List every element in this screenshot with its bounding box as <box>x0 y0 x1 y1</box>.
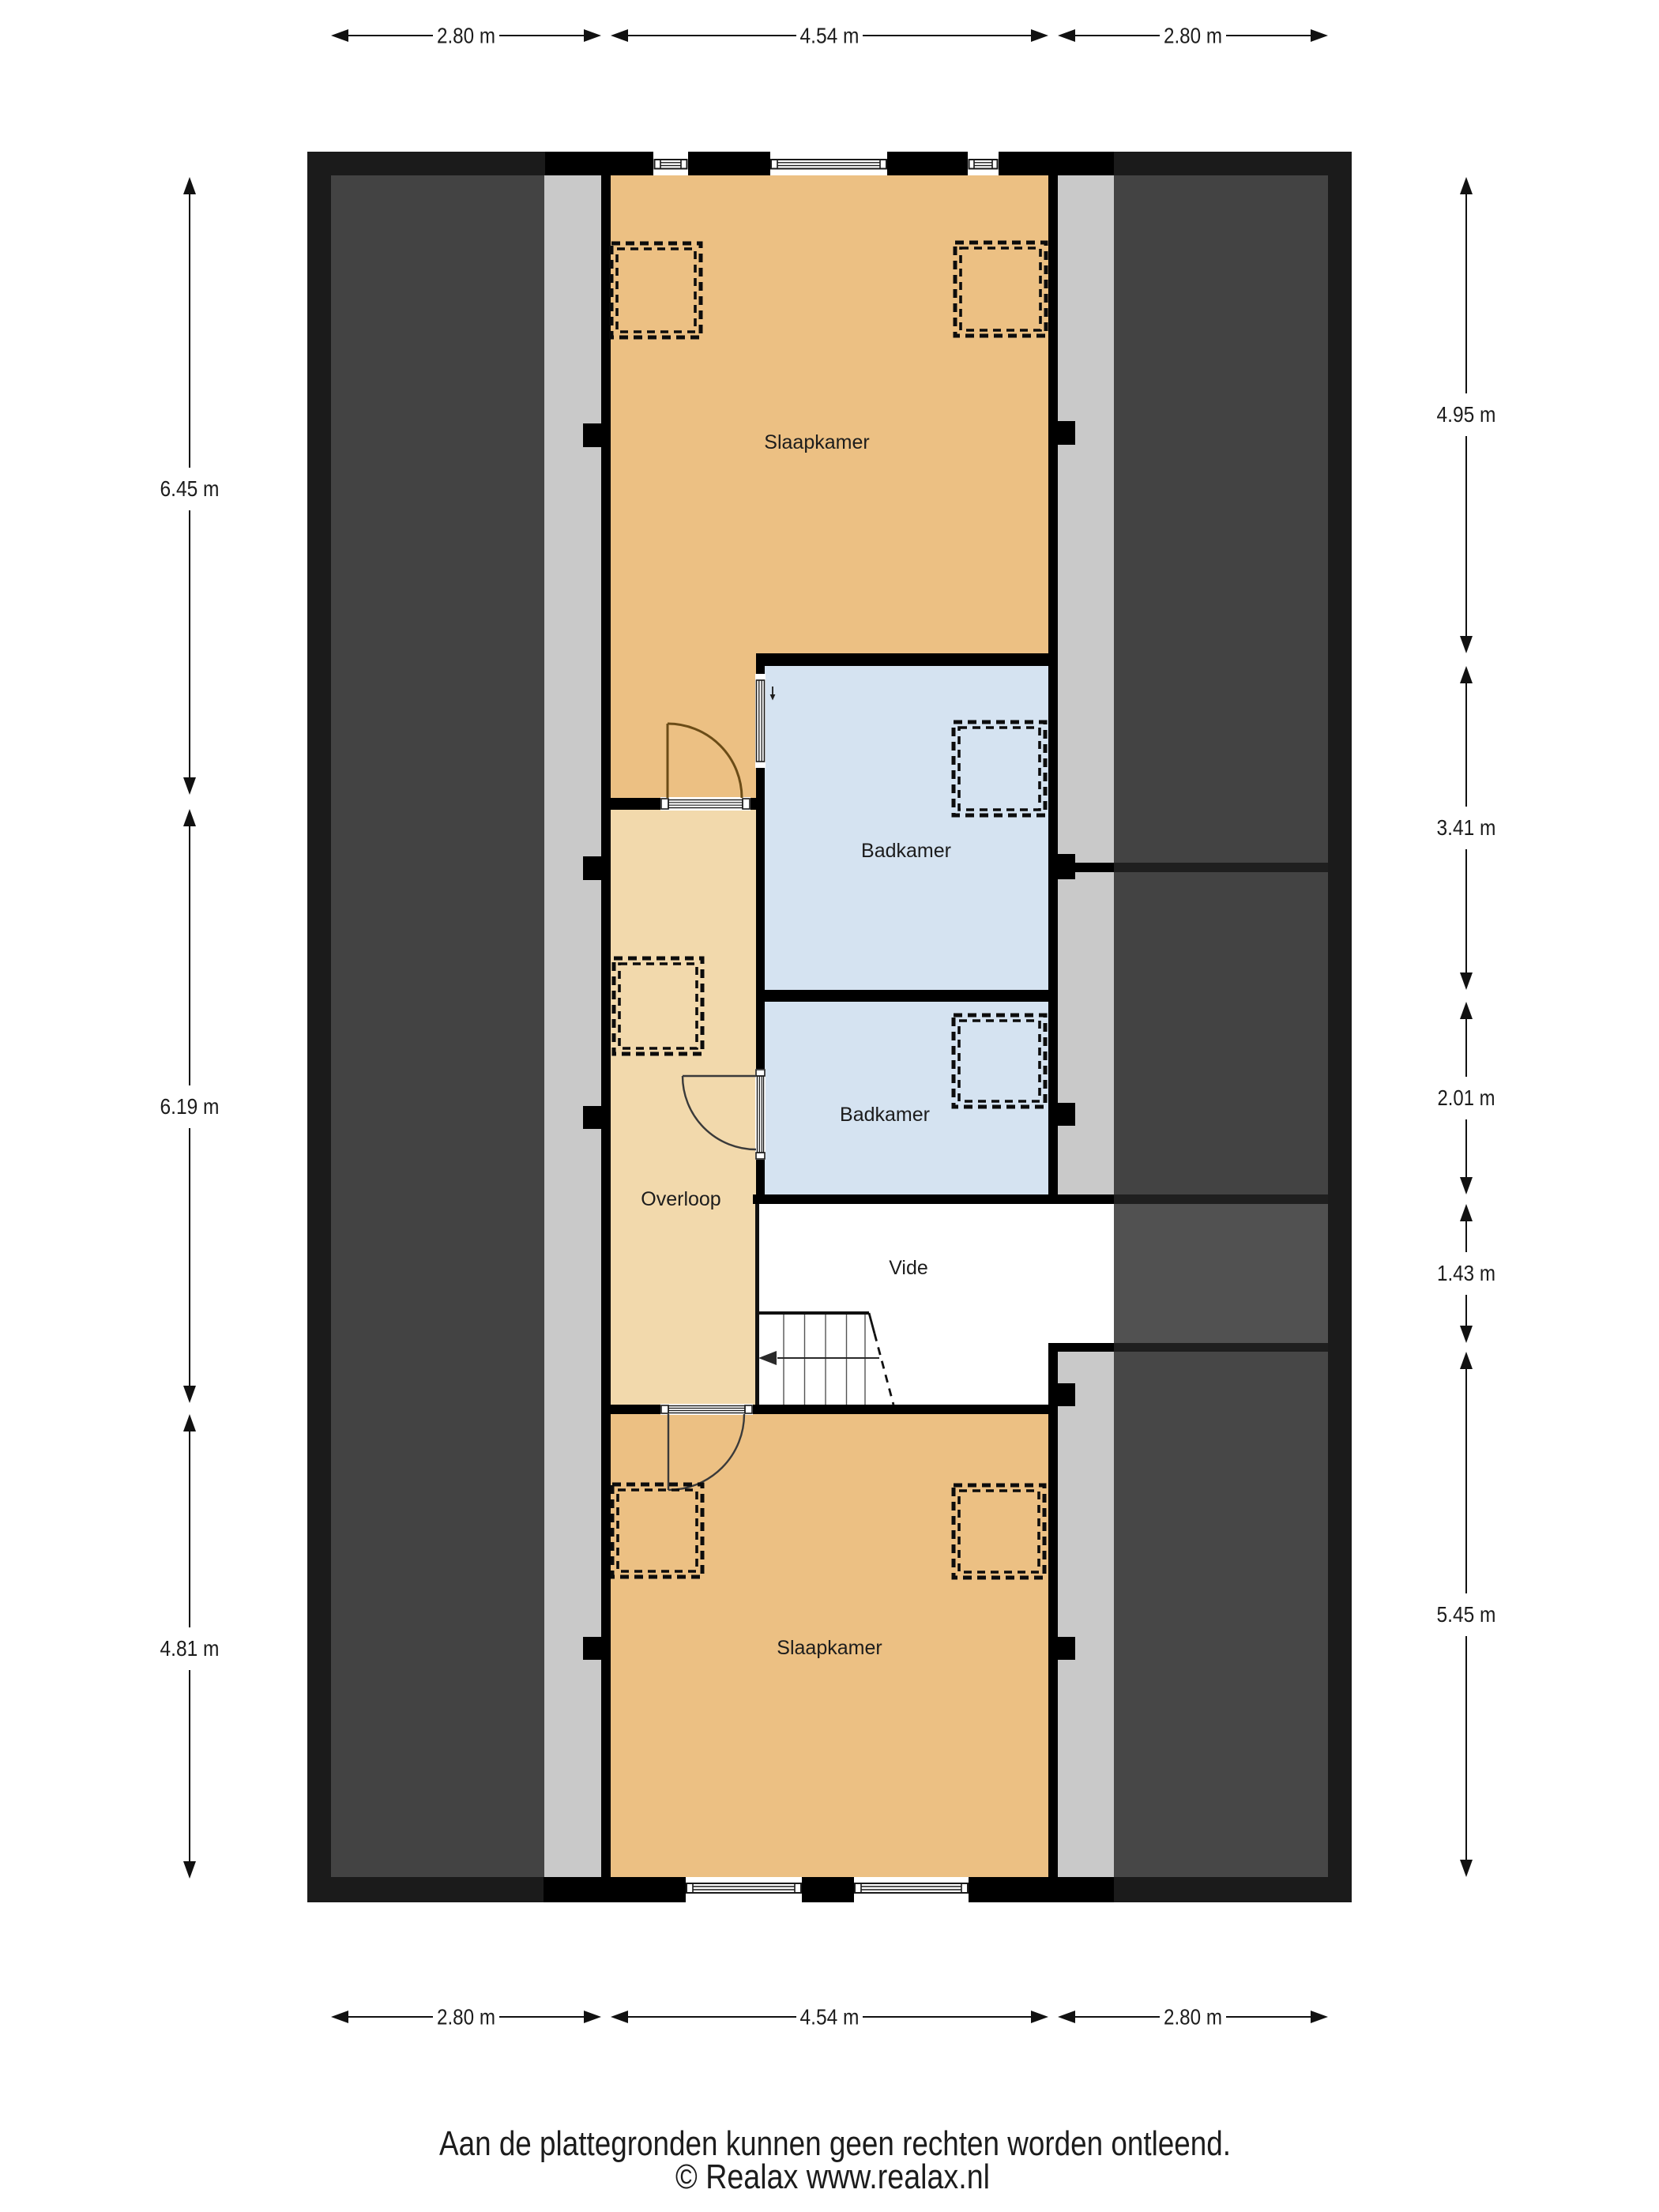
svg-text:2.01 m: 2.01 m <box>1438 1085 1495 1110</box>
svg-text:4.54 m: 4.54 m <box>800 24 860 48</box>
svg-text:2.80 m: 2.80 m <box>1164 2005 1222 2030</box>
svg-text:1.43 m: 1.43 m <box>1437 1261 1495 1285</box>
svg-text:© Realax www.realax.nl: © Realax www.realax.nl <box>675 2157 990 2196</box>
svg-text:4.81 m: 4.81 m <box>160 1636 220 1661</box>
svg-text:Slaapkamer: Slaapkamer <box>764 431 869 453</box>
svg-text:Vide: Vide <box>889 1257 928 1279</box>
svg-text:2.80 m: 2.80 m <box>1164 24 1222 48</box>
svg-text:2.80 m: 2.80 m <box>437 24 495 48</box>
svg-text:2.80 m: 2.80 m <box>437 2005 495 2030</box>
svg-text:Badkamer: Badkamer <box>861 840 951 862</box>
svg-text:4.54 m: 4.54 m <box>800 2005 860 2030</box>
svg-text:Slaapkamer: Slaapkamer <box>777 1637 882 1659</box>
svg-text:3.41 m: 3.41 m <box>1437 815 1496 840</box>
svg-text:4.95 m: 4.95 m <box>1437 402 1496 427</box>
svg-text:Overloop: Overloop <box>641 1188 720 1210</box>
svg-text:Badkamer: Badkamer <box>840 1104 930 1126</box>
svg-text:5.45 m: 5.45 m <box>1437 1602 1496 1627</box>
svg-text:6.19 m: 6.19 m <box>160 1094 220 1119</box>
svg-text:6.45 m: 6.45 m <box>160 476 220 501</box>
